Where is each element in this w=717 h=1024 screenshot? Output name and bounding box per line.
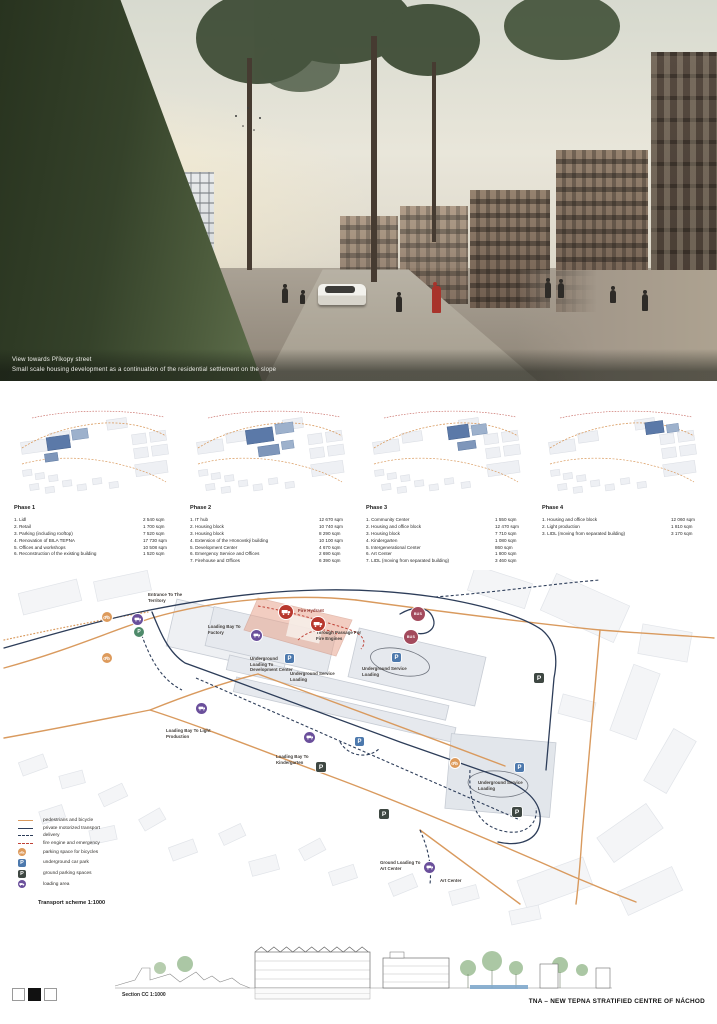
map-base-drawing — [0, 570, 717, 935]
phase-item: 6. Art Center1 800 sqm — [366, 551, 529, 558]
map-label-entrance: Entrance To The Territory — [148, 592, 194, 603]
phase-item: 3. Housing block7 710 sqm — [366, 531, 529, 538]
child-silhouette — [300, 294, 305, 304]
legend-item: parking space for bicycles — [18, 848, 100, 856]
bicycle-parking-icon — [102, 653, 112, 663]
legend-item: delivery — [18, 833, 100, 838]
bus-stop-icon: BUS — [411, 607, 425, 621]
phase-4-list: 1. Housing and office block12 060 sqm 2.… — [542, 517, 705, 538]
hero-caption: View towards Příkopy street Small scale … — [0, 349, 717, 381]
phase-item: 1. Community Center1 550 sqm — [366, 517, 529, 524]
phase-item: 5. Offices and workshops10 508 sqm — [14, 545, 177, 552]
map-legend: pedestrians and bicycle private motorize… — [18, 818, 100, 891]
map-label-loading-factory: Loading Bay To Factory — [208, 624, 254, 635]
phase-title: Phase 2 — [190, 505, 353, 511]
phase-2-axon-diagram — [190, 398, 353, 498]
bicycle-parking-icon — [102, 612, 112, 622]
pedestrian-silhouette — [545, 282, 551, 298]
underground-car-park-icon: P — [515, 763, 524, 772]
phase-title: Phase 3 — [366, 505, 529, 511]
footer-scale-square-2 — [28, 988, 41, 1001]
footer-scale-square-1 — [12, 988, 25, 1001]
fire-line-swatch — [18, 843, 36, 844]
delivery-line-swatch — [18, 835, 36, 836]
ground-parking-icon: P — [379, 809, 389, 819]
legend-item: Pground parking spaces — [18, 870, 100, 878]
phase-item: 3. Parking (including rooftop)7 520 sqm — [14, 531, 177, 538]
phase-item: 5. Intergenerational Center860 sqm — [366, 545, 529, 552]
pedestrian-silhouette — [610, 290, 616, 303]
underground-car-park-icon: P — [355, 737, 364, 746]
phase-item: 3. Housing block8 290 sqm — [190, 531, 353, 538]
motorized-line-swatch — [18, 828, 36, 829]
phase-2-list: 1. IT hub12 670 sqm 2. Housing block10 7… — [190, 517, 353, 565]
phase-item: 3. LIDL (moving from separated building)… — [542, 531, 705, 538]
underground-car-park-icon: P — [285, 654, 294, 663]
pedestrian-silhouette — [396, 296, 402, 312]
ground-parking-icon: P — [512, 807, 522, 817]
phase-item: 2. Housing and office block12 470 sqm — [366, 524, 529, 531]
phase-3-axon-diagram — [366, 398, 529, 498]
hero-render: View towards Příkopy street Small scale … — [0, 0, 717, 381]
phase-item: 1. Lidl2 540 sqm — [14, 517, 177, 524]
hero-caption-line1: View towards Příkopy street — [12, 356, 705, 365]
phase-item: 5. Development Center4 670 sqm — [190, 545, 353, 552]
legend-item: private motorized transport — [18, 826, 100, 831]
woman-in-red — [432, 286, 441, 313]
legend-item: fire engine and emergency — [18, 841, 100, 846]
bicycle-parking-icon — [450, 758, 460, 768]
phases-row: Phase 1 1. Lidl2 540 sqm 2. Retail1 700 … — [0, 398, 717, 565]
loading-area-icon — [196, 703, 207, 714]
phase-item: 2. Retail1 700 sqm — [14, 524, 177, 531]
underground-car-park-icon: P — [18, 859, 36, 867]
phase-item: 4. Renovation of BILA TEPNA17 730 sqm — [14, 538, 177, 545]
ground-parking-icon: P — [18, 870, 36, 878]
underground-car-park-icon: P — [392, 653, 401, 662]
phase-item: 2. Housing block10 740 sqm — [190, 524, 353, 531]
phase-item: 6. Emergency Service and Offices2 690 sq… — [190, 551, 353, 558]
loading-area-icon — [304, 732, 315, 743]
pedestrian-silhouette — [558, 283, 564, 298]
bicycle-parking-icon — [18, 848, 36, 856]
loading-area-icon — [132, 614, 143, 625]
phase-1-panel: Phase 1 1. Lidl2 540 sqm 2. Retail1 700 … — [14, 398, 177, 565]
phase-title: Phase 1 — [14, 505, 177, 511]
legend-item: Punderground car park — [18, 859, 100, 867]
phase-item: 4. Kindergarten1 080 sqm — [366, 538, 529, 545]
map-label-underground-service-3: Underground Service Loading — [478, 780, 524, 791]
pedestrian-silhouette — [282, 288, 288, 303]
legend-item: pedestrians and bicycle — [18, 818, 100, 823]
phase-3-panel: Phase 3 1. Community Center1 550 sqm 2. … — [366, 398, 529, 565]
map-label-art-center: Art Center — [440, 878, 486, 884]
phase-4-axon-diagram — [542, 398, 705, 498]
pedestrian-line-swatch — [18, 820, 36, 821]
phase-item: 7. LIDL (moving from separated building)… — [366, 558, 529, 565]
phase-item: 1. IT hub12 670 sqm — [190, 517, 353, 524]
section-cc-linework — [0, 938, 717, 1004]
bus-stop-icon: BUS — [404, 630, 418, 644]
project-title: TNA – NEW TEPNA STRATIFIED CENTRE OF NÁC… — [529, 998, 705, 1005]
pine-trees — [0, 0, 717, 381]
loading-area-icon — [18, 880, 36, 888]
phase-item: 2. Light production1 810 sqm — [542, 524, 705, 531]
legend-item: loading area — [18, 880, 100, 888]
fire-engine-icon — [311, 617, 325, 631]
ground-parking-icon: P — [316, 762, 326, 772]
phase-item: 7. Firehouse and Offices6 390 sqm — [190, 558, 353, 565]
ground-parking-entry-icon: P — [134, 627, 144, 637]
phase-4-panel: Phase 4 1. Housing and office block12 06… — [542, 398, 705, 565]
map-label-loading-light-production: Loading Bay To Light Production — [166, 728, 212, 739]
phase-3-list: 1. Community Center1 550 sqm 2. Housing … — [366, 517, 529, 565]
transport-scheme-map: Entrance To The Territory Loading Bay To… — [0, 570, 717, 935]
presentation-board: View towards Příkopy street Small scale … — [0, 0, 717, 1024]
section-label: Section CC 1:1000 — [122, 992, 166, 998]
phase-1-axon-diagram — [14, 398, 177, 498]
loading-area-icon — [424, 862, 435, 873]
hero-caption-line2: Small scale housing development as a con… — [12, 366, 705, 375]
transport-scheme-scale-label: Transport scheme 1:1000 — [38, 900, 105, 906]
map-label-underground-service-2: Underground Service Loading — [362, 666, 408, 677]
footer-scale-square-3 — [44, 988, 57, 1001]
parked-car — [318, 284, 366, 305]
loading-area-icon — [251, 630, 262, 641]
phase-item: 1. Housing and office block12 060 sqm — [542, 517, 705, 524]
phase-title: Phase 4 — [542, 505, 705, 511]
map-label-fire-hydrant: Fire Hydrant — [298, 608, 344, 614]
phase-1-list: 1. Lidl2 540 sqm 2. Retail1 700 sqm 3. P… — [14, 517, 177, 558]
phase-item: 4. Extension of the Hronovský building10… — [190, 538, 353, 545]
phase-item: 6. Reconstruction of the existing buildi… — [14, 551, 177, 558]
pedestrian-silhouette — [642, 294, 648, 311]
map-label-ground-loading-art: Ground Loading To Art Center — [380, 860, 426, 871]
phase-2-panel: Phase 2 1. IT hub12 670 sqm 2. Housing b… — [190, 398, 353, 565]
map-label-fire-passage: Through Passage For Fire Engines — [316, 630, 362, 641]
fire-engine-icon — [279, 605, 293, 619]
ground-parking-icon: P — [534, 673, 544, 683]
map-label-underground-service-1: Underground Service Loading — [290, 671, 336, 682]
